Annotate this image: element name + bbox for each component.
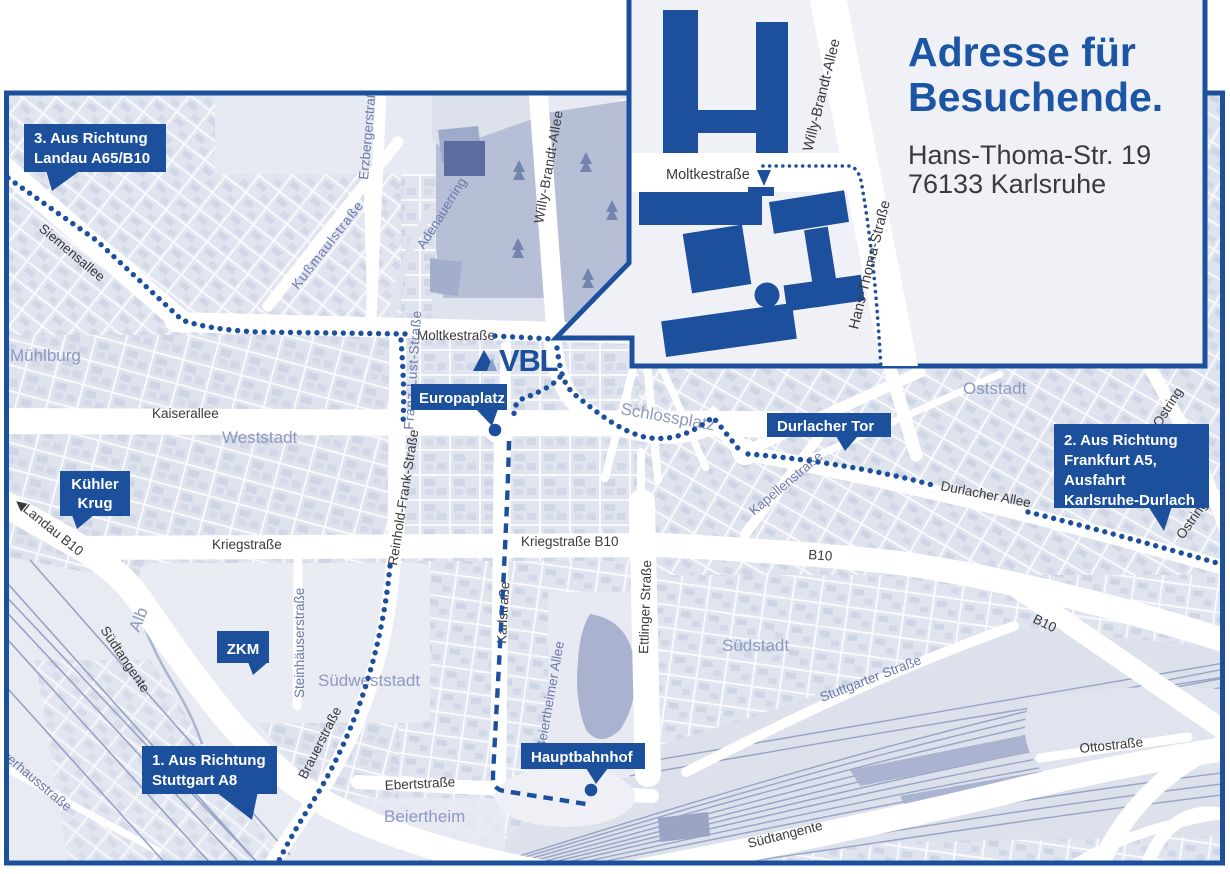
svg-text:Europaplatz: Europaplatz bbox=[419, 390, 505, 407]
svg-text:Moltkestraße: Moltkestraße bbox=[417, 328, 495, 343]
svg-text:2. Aus Richtung: 2. Aus Richtung bbox=[1064, 432, 1178, 449]
svg-text:Ausfahrt: Ausfahrt bbox=[1064, 472, 1126, 489]
svg-text:Stuttgart A8: Stuttgart A8 bbox=[152, 772, 237, 789]
svg-text:Kühler: Kühler bbox=[71, 476, 119, 493]
svg-text:Karlsruhe-Durlach: Karlsruhe-Durlach bbox=[1064, 492, 1195, 509]
svg-text:3. Aus Richtung: 3. Aus Richtung bbox=[34, 130, 148, 147]
svg-text:Kriegstraße B10: Kriegstraße B10 bbox=[521, 534, 619, 549]
svg-text:Besuchende.: Besuchende. bbox=[908, 74, 1163, 120]
svg-text:Durlacher Tor: Durlacher Tor bbox=[777, 418, 874, 435]
svg-text:Steinhäuserstraße: Steinhäuserstraße bbox=[292, 588, 307, 698]
svg-text:Frankfurt A5,: Frankfurt A5, bbox=[1064, 452, 1157, 469]
svg-text:Hans-Thoma-Str. 19: Hans-Thoma-Str. 19 bbox=[908, 140, 1151, 170]
svg-text:VBL: VBL bbox=[499, 343, 558, 378]
svg-text:Südstadt: Südstadt bbox=[722, 636, 789, 655]
svg-text:76133 Karlsruhe: 76133 Karlsruhe bbox=[908, 169, 1106, 199]
svg-text:Beiertheim: Beiertheim bbox=[384, 807, 465, 826]
svg-text:Landau A65/B10: Landau A65/B10 bbox=[34, 150, 150, 167]
svg-text:Oststadt: Oststadt bbox=[963, 379, 1027, 398]
svg-text:Kaiserallee: Kaiserallee bbox=[152, 406, 219, 421]
svg-text:Hauptbahnhof: Hauptbahnhof bbox=[531, 749, 634, 766]
svg-text:Mühlburg: Mühlburg bbox=[10, 346, 81, 365]
svg-text:Weststadt: Weststadt bbox=[222, 428, 298, 447]
svg-text:B10: B10 bbox=[808, 547, 833, 564]
svg-text:ZKM: ZKM bbox=[227, 641, 260, 658]
svg-text:Adresse für: Adresse für bbox=[908, 29, 1136, 75]
svg-text:Moltkestraße: Moltkestraße bbox=[666, 167, 750, 183]
svg-text:Krug: Krug bbox=[78, 495, 113, 512]
svg-text:1. Aus Richtung: 1. Aus Richtung bbox=[152, 752, 266, 769]
svg-text:Kriegstraße: Kriegstraße bbox=[212, 537, 282, 552]
